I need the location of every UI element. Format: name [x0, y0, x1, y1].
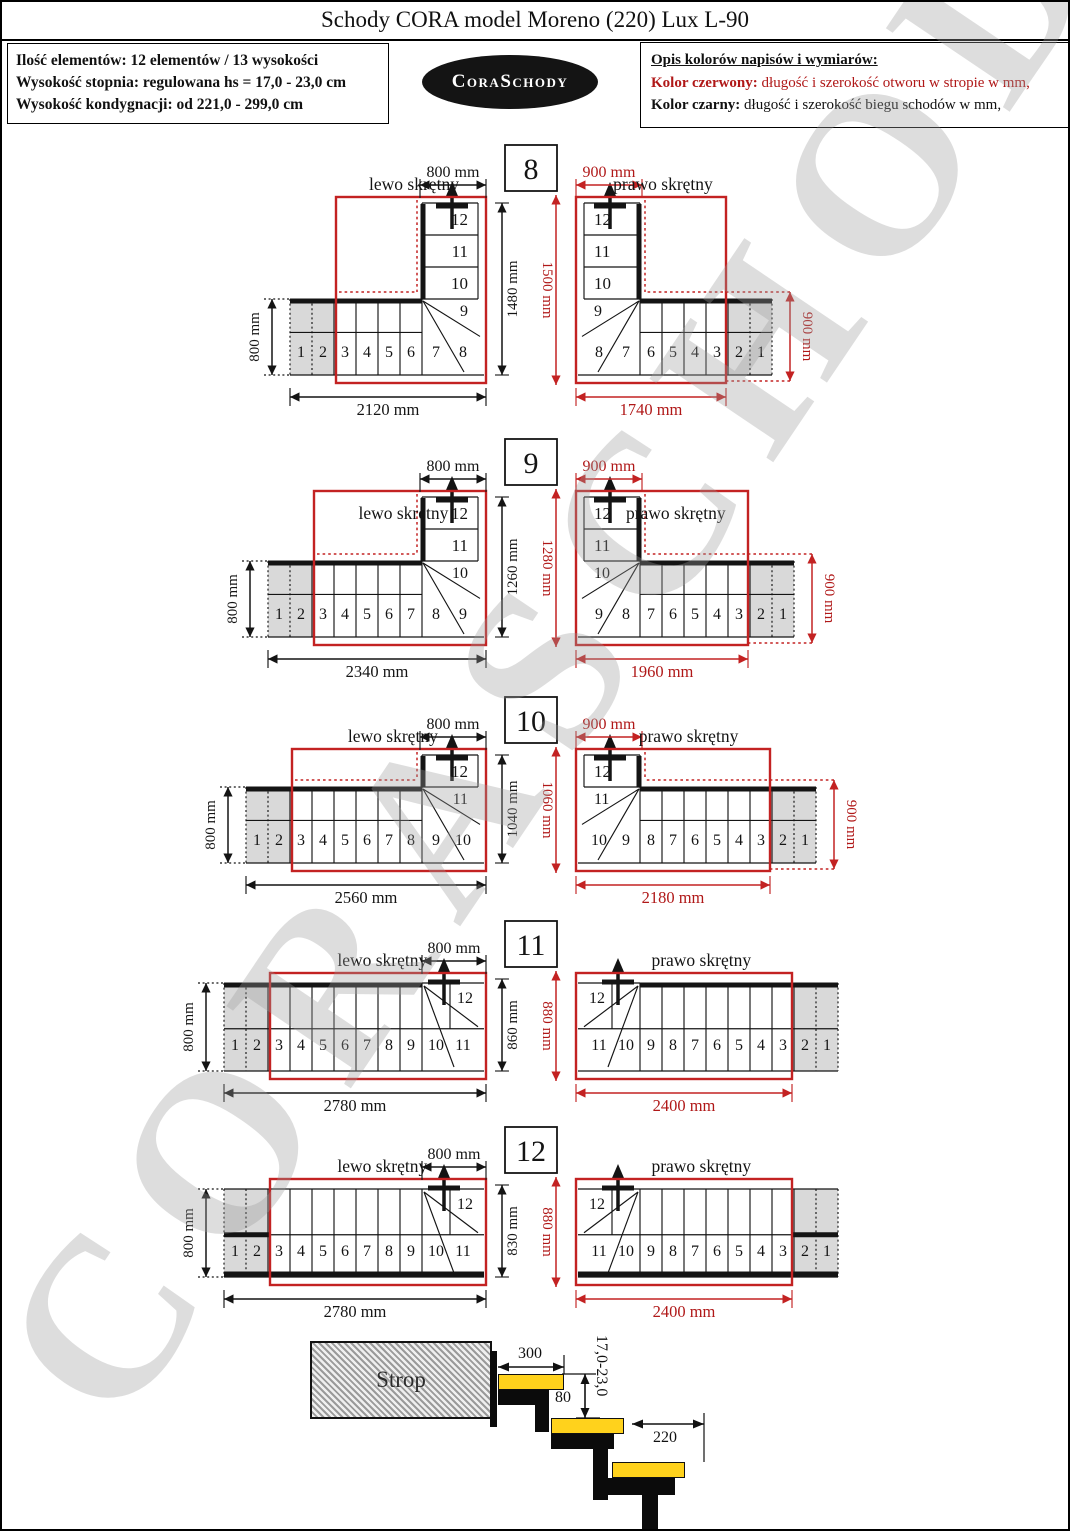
variant-number: 8: [524, 153, 539, 186]
step-number: 8: [669, 1037, 677, 1054]
variant-label: prawo skrętny: [639, 726, 739, 746]
step-number: 11: [453, 791, 468, 808]
step-number: 7: [669, 832, 677, 849]
step-number: 10: [455, 832, 471, 849]
center-dims-9: 1260 mm1280 mm9: [495, 439, 561, 647]
side-dim-label: 800 mm: [181, 1002, 197, 1052]
diagram-row-8: 800 mm800 mm2120 mm123456789121110lewo s…: [16, 141, 1068, 421]
info-line-storey-height: Wysokość kondygnacji: od 221,0 - 299,0 c…: [16, 94, 382, 116]
step-number: 12: [457, 990, 473, 1007]
center-dims-10: 1040 mm1060 mm10: [495, 697, 561, 873]
step-number: 1: [757, 344, 765, 361]
step-number: 2: [779, 832, 787, 849]
bottom-dim-label: 2400 mm: [653, 1302, 716, 1321]
side-dim-label: 800 mm: [225, 574, 241, 624]
step-number: 8: [385, 1037, 393, 1054]
stair-variant-diagrams: 800 mm800 mm2120 mm123456789121110lewo s…: [16, 141, 1068, 1323]
step-number: 11: [594, 242, 610, 261]
step-number: 12: [451, 210, 468, 229]
dim-riser-range: 17,0-23,0: [592, 1335, 610, 1396]
step-number: 4: [735, 832, 743, 849]
step-number: 1: [823, 1243, 831, 1260]
sheet-title-bar: Schody CORA model Moreno (220) Lux L-90: [2, 2, 1068, 41]
step-number: 11: [452, 242, 468, 261]
stair-plan-12-right: 2400 mm123456789101112prawo skrętny: [576, 1156, 838, 1321]
opening-dim-black: 860 mm: [505, 1000, 521, 1050]
step-number: 11: [452, 536, 468, 555]
step-number: 8: [622, 606, 630, 623]
step-number: 10: [618, 1243, 634, 1260]
variant-number: 9: [524, 447, 539, 480]
stair-plan-8-right: 900 mm900 mm1740 mm123456789121110prawo …: [576, 164, 815, 419]
sheet-title: Schody CORA model Moreno (220) Lux L-90: [321, 7, 749, 32]
step-number: 7: [622, 344, 630, 361]
bottom-dim-label: 2180 mm: [642, 888, 705, 907]
bottom-dim-label: 2560 mm: [335, 888, 398, 907]
step-number: 3: [757, 832, 765, 849]
step-number: 8: [647, 832, 655, 849]
step-number: 3: [735, 606, 743, 623]
step-number: 5: [385, 344, 393, 361]
step-number: 2: [253, 1243, 261, 1260]
step-number: 1: [253, 832, 261, 849]
step-number: 10: [591, 832, 607, 849]
step-number: 12: [457, 1196, 473, 1213]
opening-dim-red: 880 mm: [539, 1207, 555, 1257]
opening-dim-red: 880 mm: [539, 1001, 555, 1051]
step-number: 12: [594, 762, 611, 781]
step-number: 6: [691, 832, 699, 849]
step-number: 4: [757, 1243, 765, 1260]
step-number: 9: [622, 832, 630, 849]
top-dim-label: 800 mm: [428, 1146, 481, 1163]
step-number: 10: [618, 1037, 634, 1054]
step-number: 12: [594, 504, 611, 523]
top-dim-label: 800 mm: [428, 940, 481, 957]
bottom-dim-label: 1960 mm: [631, 662, 694, 681]
step-number: 9: [432, 832, 440, 849]
side-dim-label: 900 mm: [799, 312, 815, 362]
step-number: 5: [319, 1243, 327, 1260]
step-number: 5: [735, 1243, 743, 1260]
step-number: 2: [275, 832, 283, 849]
step-number: 6: [341, 1037, 349, 1054]
step-number: 6: [341, 1243, 349, 1260]
step-number: 4: [297, 1243, 305, 1260]
step-number: 7: [363, 1243, 371, 1260]
step-number: 7: [407, 606, 415, 623]
step-number: 9: [647, 1243, 655, 1260]
legend-black-line: Kolor czarny: długość i szerokość biegu …: [651, 94, 1063, 117]
step-number: 2: [801, 1037, 809, 1054]
step-number: 10: [452, 565, 468, 582]
stair-plan-9-right: 900 mm900 mm1960 mm123456789101211prawo …: [576, 458, 837, 681]
step-number: 4: [297, 1037, 305, 1054]
step-number: 6: [407, 344, 415, 361]
opening-dim-red: 1060 mm: [539, 781, 555, 838]
step-number: 1: [779, 606, 787, 623]
step-number: 3: [779, 1037, 787, 1054]
step-number: 3: [779, 1243, 787, 1260]
dim-tread-depth: 300: [502, 1345, 558, 1363]
center-dims-11: 860 mm880 mm11: [495, 921, 561, 1081]
side-dim-label: 900 mm: [843, 800, 859, 850]
color-legend-box: Opis kolorów napisów i wymiarów: Kolor c…: [640, 42, 1070, 128]
diagram-row-10: 800 mm800 mm2560 mm123456789101112lewo s…: [16, 693, 1068, 909]
variant-label: lewo skrętny: [337, 1156, 427, 1176]
step-number: 11: [591, 1243, 606, 1260]
step-number: 9: [459, 606, 467, 623]
top-dim-label: 900 mm: [583, 716, 636, 733]
stair-plan-8-left: 800 mm800 mm2120 mm123456789121110lewo s…: [247, 164, 486, 419]
stair-plans-8: 800 mm800 mm2120 mm123456789121110lewo s…: [16, 141, 1056, 421]
stair-plans-10: 800 mm800 mm2560 mm123456789101112lewo s…: [16, 693, 1056, 909]
opening-dim-red: 1500 mm: [539, 261, 555, 318]
bottom-dim-label: 2400 mm: [653, 1096, 716, 1115]
step-number: 2: [297, 606, 305, 623]
diagram-row-9: 800 mm800 mm2340 mm123456789101211lewo s…: [16, 435, 1068, 683]
step-number: 4: [757, 1037, 765, 1054]
top-dim-label: 800 mm: [427, 458, 480, 475]
step-number: 3: [341, 344, 349, 361]
step-number: 9: [594, 303, 602, 320]
step-number: 2: [801, 1243, 809, 1260]
step-number: 4: [713, 606, 721, 623]
step-number: 1: [275, 606, 283, 623]
step-number: 8: [385, 1243, 393, 1260]
variant-label: lewo skrętny: [337, 950, 427, 970]
step-number: 10: [451, 274, 468, 293]
step-number: 9: [460, 303, 468, 320]
side-dim-label: 800 mm: [181, 1208, 197, 1258]
step-number: 2: [757, 606, 765, 623]
side-dim-label: 800 mm: [203, 800, 219, 850]
step-number: 11: [594, 536, 610, 555]
step-number: 5: [341, 832, 349, 849]
opening-dim-black: 830 mm: [505, 1206, 521, 1256]
logo-text: CoraSchody: [452, 71, 569, 93]
diagram-row-12: 800 mm800 mm2780 mm123456789101112lewo s…: [16, 1123, 1068, 1323]
variant-label: lewo skrętny: [369, 174, 459, 194]
step-number: 4: [691, 344, 699, 361]
step-number: 7: [385, 832, 393, 849]
step-number: 1: [231, 1243, 239, 1260]
sheet-header: Ilość elementów: 12 elementów / 13 wysok…: [2, 41, 1068, 137]
step-number: 10: [428, 1243, 444, 1260]
step-number: 4: [341, 606, 349, 623]
stair-plan-10-right: 900 mm900 mm2180 mm123456789101112prawo …: [576, 716, 859, 907]
step-number: 10: [594, 274, 611, 293]
stair-plans-12: 800 mm800 mm2780 mm123456789101112lewo s…: [16, 1123, 1056, 1323]
step-number: 6: [647, 344, 655, 361]
step-number: 12: [451, 504, 468, 523]
step-number: 5: [713, 832, 721, 849]
step-number: 8: [459, 344, 467, 361]
side-dim-label: 900 mm: [821, 574, 837, 624]
step-number: 6: [363, 832, 371, 849]
center-dims-12: 830 mm880 mm12: [495, 1127, 561, 1287]
step-number: 5: [669, 344, 677, 361]
step-number: 9: [647, 1037, 655, 1054]
step-number: 2: [735, 344, 743, 361]
step-number: 4: [363, 344, 371, 361]
step-number: 12: [594, 210, 611, 229]
stair-plans-11: 800 mm800 mm2780 mm123456789101112lewo s…: [16, 917, 1056, 1117]
opening-dim-black: 1260 mm: [505, 538, 521, 595]
info-box: Ilość elementów: 12 elementów / 13 wysok…: [7, 43, 389, 124]
legend-heading: Opis kolorów napisów i wymiarów:: [651, 49, 1063, 72]
step-number: 8: [432, 606, 440, 623]
step-number: 7: [691, 1037, 699, 1054]
step-number: 6: [385, 606, 393, 623]
stair-plan-9-left: 800 mm800 mm2340 mm123456789101211lewo s…: [225, 458, 486, 681]
step-number: 7: [647, 606, 655, 623]
step-number: 1: [231, 1037, 239, 1054]
variant-number: 10: [516, 705, 546, 738]
variant-label: prawo skrętny: [651, 950, 751, 970]
step-number: 5: [691, 606, 699, 623]
step-number: 12: [589, 1196, 605, 1213]
step-number: 9: [595, 606, 603, 623]
bottom-dim-label: 2780 mm: [324, 1302, 387, 1321]
step-number: 10: [594, 565, 610, 582]
info-line-elements: Ilość elementów: 12 elementów / 13 wysok…: [16, 50, 382, 72]
center-dims-8: 1480 mm1500 mm8: [495, 145, 561, 385]
stair-plan-11-left: 800 mm800 mm2780 mm123456789101112lewo s…: [181, 940, 486, 1115]
step-number: 2: [319, 344, 327, 361]
step-number: 11: [594, 791, 609, 808]
opening-dim-red: 1280 mm: [539, 539, 555, 596]
bottom-dim-label: 2340 mm: [346, 662, 409, 681]
step-number: 3: [713, 344, 721, 361]
info-line-step-height: Wysokość stopnia: regulowana hs = 17,0 -…: [16, 72, 382, 94]
opening-dim-black: 1040 mm: [505, 780, 521, 837]
opening-dim-black: 1480 mm: [505, 260, 521, 317]
variant-label: lewo skrętny: [358, 503, 448, 523]
diagram-row-11: 800 mm800 mm2780 mm123456789101112lewo s…: [16, 917, 1068, 1117]
step-number: 7: [432, 344, 440, 361]
step-number: 6: [713, 1243, 721, 1260]
bottom-dim-label: 1740 mm: [620, 400, 683, 419]
legend-red-line: Kolor czerwony: długość i szerokość otwo…: [651, 72, 1063, 95]
step-number: 8: [595, 344, 603, 361]
bottom-dim-label: 2780 mm: [324, 1096, 387, 1115]
top-dim-label: 900 mm: [583, 458, 636, 475]
step-number: 9: [407, 1243, 415, 1260]
variant-label: prawo skrętny: [626, 503, 726, 523]
step-number: 11: [455, 1243, 470, 1260]
drawing-sheet: Schody CORA model Moreno (220) Lux L-90 …: [0, 0, 1070, 1531]
step-number: 1: [801, 832, 809, 849]
step-number: 5: [319, 1037, 327, 1054]
step-number: 9: [407, 1037, 415, 1054]
step-number: 7: [363, 1037, 371, 1054]
cora-schody-logo: CoraSchody: [422, 55, 598, 109]
variant-label: prawo skrętny: [613, 174, 713, 194]
dim-going: 220: [637, 1429, 693, 1447]
step-number: 4: [319, 832, 327, 849]
step-number: 3: [275, 1037, 283, 1054]
step-number: 12: [589, 990, 605, 1007]
step-number: 3: [297, 832, 305, 849]
step-number: 11: [455, 1037, 470, 1054]
step-number: 8: [669, 1243, 677, 1260]
step-number: 3: [275, 1243, 283, 1260]
step-number: 7: [691, 1243, 699, 1260]
step-number: 1: [823, 1037, 831, 1054]
bottom-dim-label: 2120 mm: [357, 400, 420, 419]
step-number: 10: [428, 1037, 444, 1054]
variant-number: 12: [516, 1135, 546, 1168]
step-number: 3: [319, 606, 327, 623]
step-number: 2: [253, 1037, 261, 1054]
variant-label: lewo skrętny: [348, 726, 438, 746]
step-number: 5: [363, 606, 371, 623]
step-number: 6: [713, 1037, 721, 1054]
step-number: 12: [451, 762, 468, 781]
dim-overlap: 80: [555, 1389, 571, 1407]
stair-plans-9: 800 mm800 mm2340 mm123456789101211lewo s…: [16, 435, 1056, 683]
variant-number: 11: [517, 929, 546, 962]
cross-section: Strop 300 80 220 17,0-2: [292, 1329, 732, 1531]
step-number: 1: [297, 344, 305, 361]
step-number: 11: [591, 1037, 606, 1054]
variant-label: prawo skrętny: [651, 1156, 751, 1176]
step-number: 8: [407, 832, 415, 849]
step-number: 5: [735, 1037, 743, 1054]
stair-plan-10-left: 800 mm800 mm2560 mm123456789101112lewo s…: [203, 716, 486, 907]
side-dim-label: 800 mm: [247, 312, 263, 362]
stair-plan-12-left: 800 mm800 mm2780 mm123456789101112lewo s…: [181, 1146, 486, 1321]
step-number: 6: [669, 606, 677, 623]
stair-plan-11-right: 2400 mm123456789101112prawo skrętny: [576, 950, 838, 1115]
